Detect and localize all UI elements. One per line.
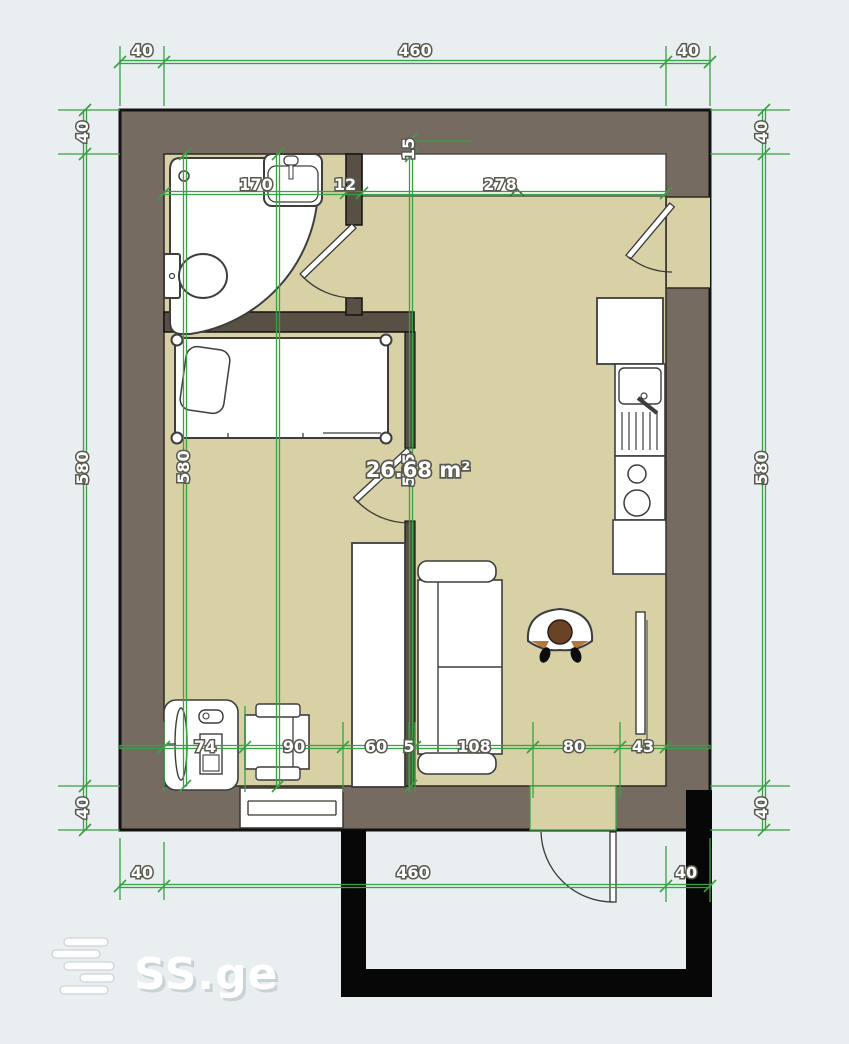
- dim-left-top: 40: [73, 121, 92, 143]
- balcony-wall-bottom: [341, 969, 712, 997]
- dim-line-top: [120, 61, 710, 64]
- dim-inner-top-15: 15: [399, 138, 418, 160]
- bed-post: [172, 433, 183, 444]
- sink-faucet: [284, 156, 298, 165]
- dim-top-center: 460: [398, 41, 431, 60]
- dim-line-bottom: [120, 885, 710, 888]
- refrigerator: [597, 298, 663, 364]
- dim-top-left: 40: [131, 41, 153, 60]
- dim-inner-bottom-60: 60: [365, 737, 387, 756]
- dim-ext-right: [710, 110, 790, 830]
- bottom-window: [240, 788, 343, 828]
- tv: [636, 612, 645, 734]
- watermark: SS.ge SS.ge: [52, 938, 281, 1003]
- dim-inner-bottom-5: 5: [403, 737, 414, 756]
- sofa-armrest-bottom: [418, 753, 496, 774]
- brand-text: SS.ge: [134, 949, 278, 1000]
- dim-inner-bottom-80: 80: [563, 737, 585, 756]
- balcony-opening: [530, 786, 616, 830]
- dim-inner-bottom-90: 90: [283, 737, 305, 756]
- floor-plan-svg: 40 460 40 40 460 40 40 580 40 40 580 40 …: [0, 0, 849, 1044]
- vanity-mirror: [175, 708, 187, 780]
- dim-right-middle: 580: [752, 451, 771, 484]
- dim-left-bottom: 40: [73, 797, 92, 819]
- dim-inner-bottom-74: 74: [194, 737, 216, 756]
- dim-right-top: 40: [752, 121, 771, 143]
- chair-bottom: [256, 767, 300, 780]
- chair-top: [256, 704, 300, 717]
- toilet-tank: [164, 254, 180, 298]
- dim-inner-top-12: 12: [334, 175, 356, 194]
- dim-inner-bottom-43: 43: [632, 737, 654, 756]
- dim-top-right: 40: [677, 41, 699, 60]
- dim-left-middle: 580: [73, 451, 92, 484]
- dim-right-bottom: 40: [752, 797, 771, 819]
- dim-inner-bottom-108: 108: [457, 737, 490, 756]
- entrance-opening: [667, 197, 710, 288]
- dim-bottom-right: 40: [675, 863, 697, 882]
- kitchen-cabinet: [613, 520, 666, 574]
- sink-faucet-stem: [289, 165, 293, 179]
- balcony-door: [541, 832, 616, 902]
- dim-bottom-left: 40: [131, 863, 153, 882]
- person-head: [548, 620, 572, 644]
- bed-post: [381, 335, 392, 346]
- bed-post: [381, 433, 392, 444]
- bed-post: [172, 335, 183, 346]
- sofa-armrest-top: [418, 561, 496, 582]
- dim-inner-top-170: 170: [239, 175, 272, 194]
- ssge-logo-icon: [52, 938, 114, 994]
- dim-bottom-center: 460: [396, 863, 429, 882]
- floor-plan-image: 40 460 40 40 460 40 40 580 40 40 580 40 …: [0, 0, 849, 1044]
- dim-inner-580: 580: [174, 450, 193, 483]
- area-label: 26.68 m²: [366, 458, 471, 482]
- balcony-wall-right: [686, 790, 712, 997]
- dim-inner-top-278: 278: [483, 175, 516, 194]
- bathroom-wall-stub-bottom: [346, 298, 362, 315]
